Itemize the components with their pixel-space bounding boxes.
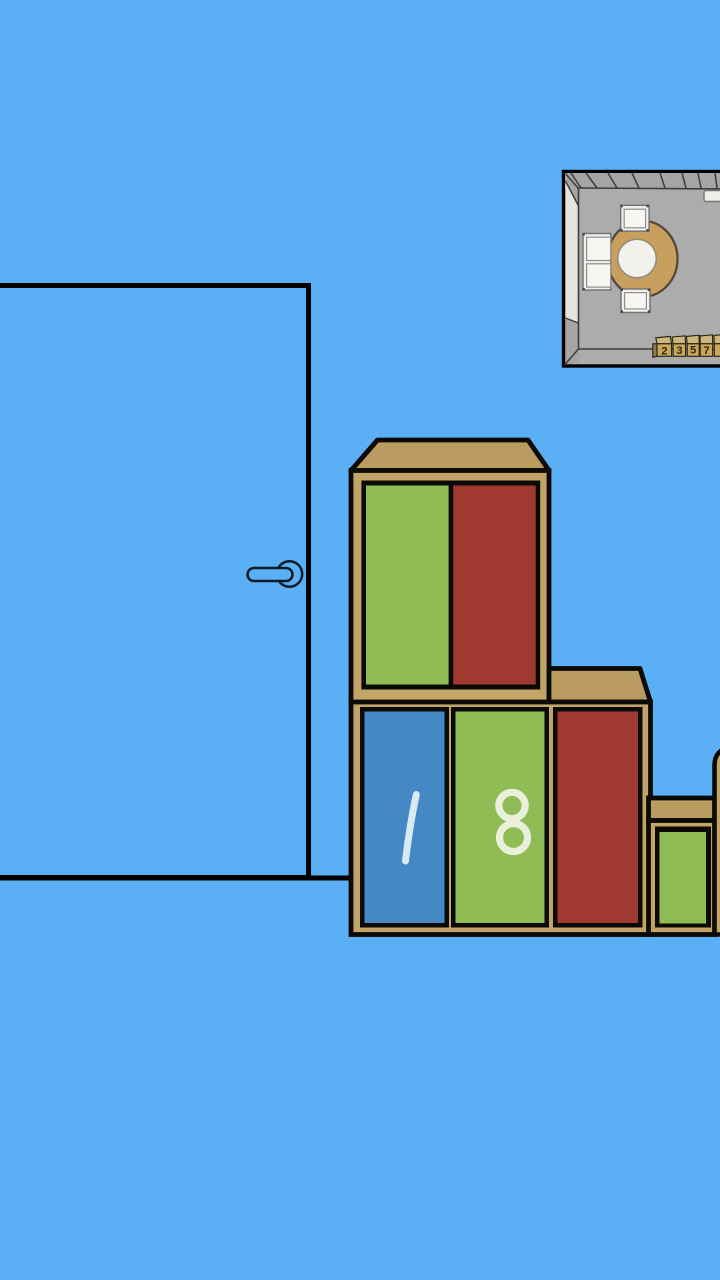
svg-text:3: 3 (676, 345, 682, 357)
svg-text:7: 7 (703, 345, 709, 357)
svg-text:2: 2 (661, 346, 667, 358)
svg-text:5: 5 (690, 344, 696, 356)
